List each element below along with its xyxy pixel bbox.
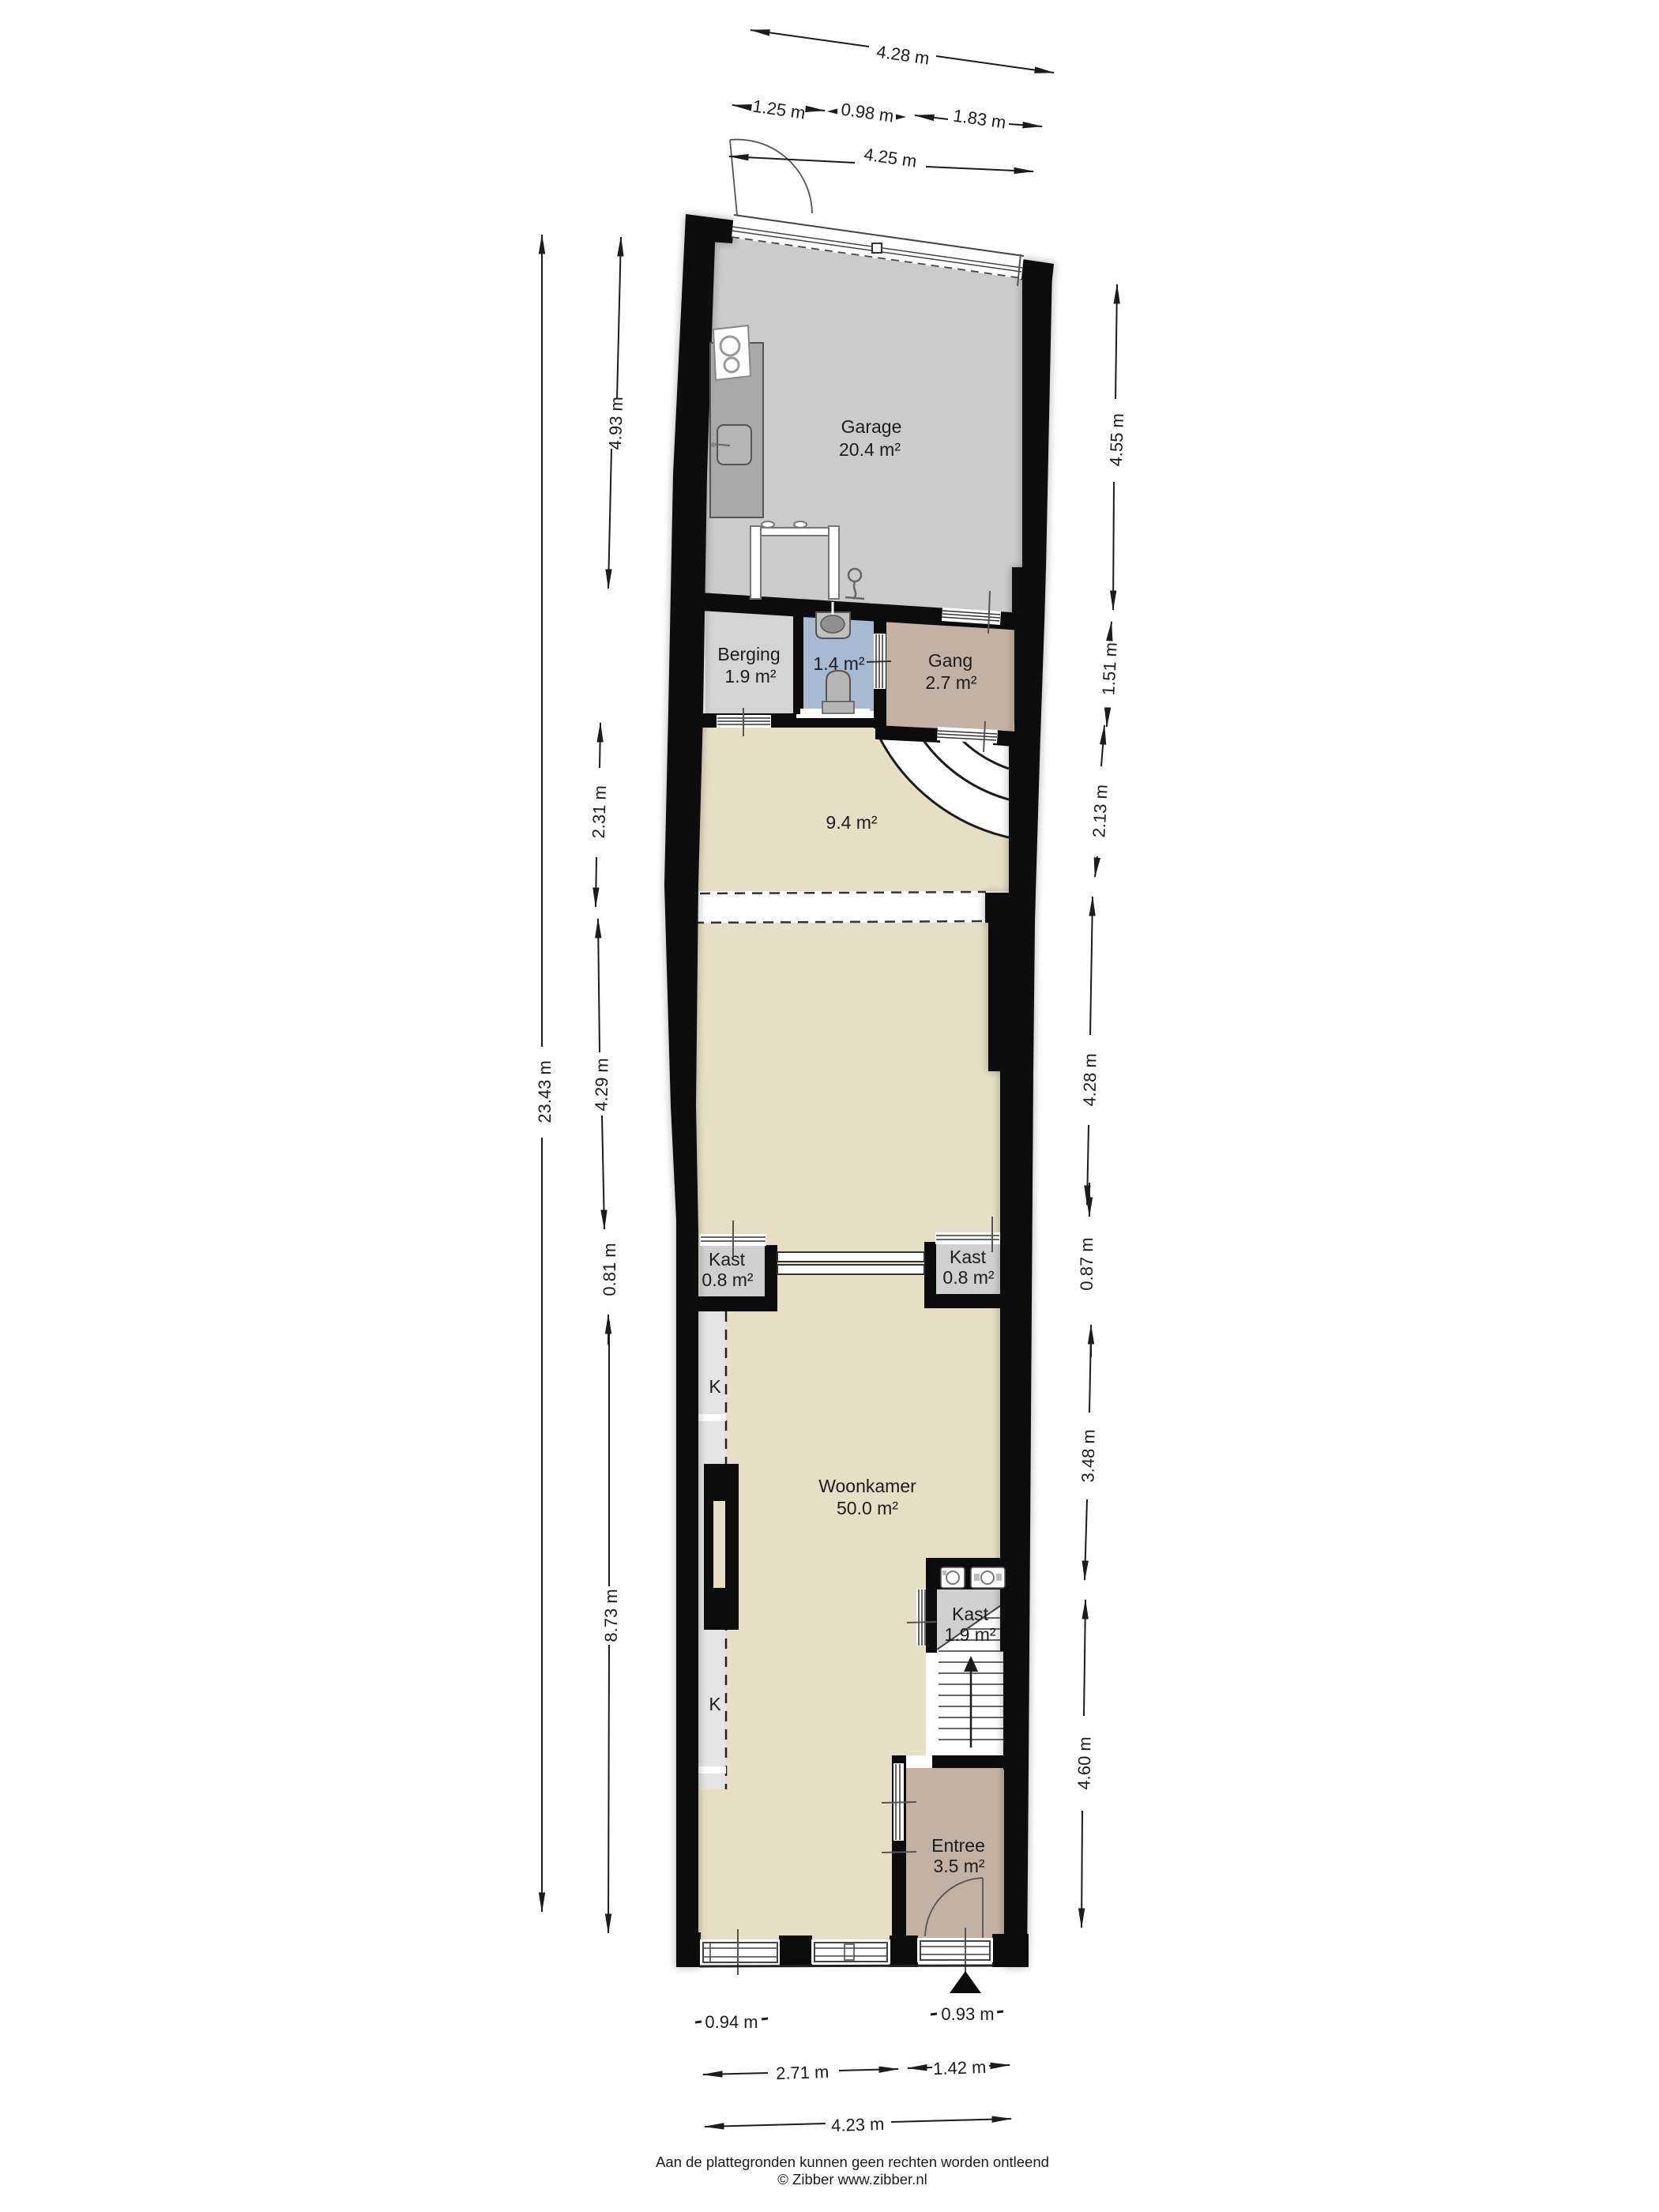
svg-text:2.31 m: 2.31 m [589, 785, 610, 839]
svg-text:K: K [709, 1694, 721, 1714]
svg-text:2.71 m: 2.71 m [776, 2062, 829, 2083]
svg-text:23.43 m: 23.43 m [535, 1060, 555, 1123]
svg-text:4.25 m: 4.25 m [863, 145, 918, 171]
svg-text:3.5 m²: 3.5 m² [933, 1856, 985, 1876]
svg-text:Berging: Berging [717, 644, 780, 664]
svg-text:1.42 m: 1.42 m [933, 2057, 987, 2078]
svg-text:1.25 m: 1.25 m [751, 96, 807, 123]
svg-text:4.29 m: 4.29 m [591, 1058, 611, 1112]
svg-text:2.13 m: 2.13 m [1089, 784, 1111, 837]
svg-text:4.28 m: 4.28 m [1079, 1053, 1100, 1107]
svg-text:1.4 m²: 1.4 m² [813, 653, 865, 674]
svg-text:4.60 m: 4.60 m [1074, 1736, 1094, 1790]
svg-text:2.7 m²: 2.7 m² [925, 672, 977, 693]
svg-text:Garage: Garage [841, 416, 902, 437]
svg-text:© Zibber www.zibber.nl: © Zibber www.zibber.nl [777, 2171, 927, 2188]
svg-text:4.55 m: 4.55 m [1106, 413, 1127, 467]
svg-text:1.83 m: 1.83 m [952, 106, 1007, 133]
svg-text:Kast: Kast [952, 1604, 989, 1624]
svg-text:0.93 m: 0.93 m [941, 2004, 994, 2024]
svg-text:50.0 m²: 50.0 m² [837, 1498, 898, 1518]
svg-text:Gang: Gang [928, 650, 972, 671]
svg-text:3.48 m: 3.48 m [1078, 1429, 1098, 1483]
svg-text:0.87 m: 0.87 m [1077, 1237, 1097, 1290]
svg-text:0.8 m²: 0.8 m² [942, 1267, 995, 1288]
svg-text:8.73 m: 8.73 m [601, 1589, 621, 1642]
svg-text:0.81 m: 0.81 m [600, 1243, 619, 1296]
svg-text:0.94 m: 0.94 m [705, 2012, 758, 2032]
svg-text:1.9 m²: 1.9 m² [724, 666, 777, 687]
svg-text:Entree: Entree [931, 1835, 985, 1856]
svg-text:0.8 m²: 0.8 m² [702, 1270, 754, 1290]
svg-text:9.4 m²: 9.4 m² [826, 812, 878, 833]
svg-text:Aan de plattegronden kunnen ge: Aan de plattegronden kunnen geen rechten… [656, 2154, 1049, 2170]
svg-text:Woonkamer: Woonkamer [818, 1476, 916, 1496]
svg-text:1.9 m²: 1.9 m² [944, 1624, 996, 1645]
svg-text:4.93 m: 4.93 m [605, 397, 626, 450]
svg-text:20.4 m²: 20.4 m² [839, 439, 901, 460]
svg-text:0.98 m: 0.98 m [840, 100, 895, 126]
svg-text:4.23 m: 4.23 m [831, 2114, 885, 2135]
svg-text:4.28 m: 4.28 m [875, 42, 931, 69]
svg-text:K: K [709, 1376, 721, 1397]
svg-text:Kast: Kast [709, 1249, 746, 1270]
svg-text:1.51 m: 1.51 m [1098, 641, 1120, 695]
svg-text:Kast: Kast [950, 1247, 987, 1267]
